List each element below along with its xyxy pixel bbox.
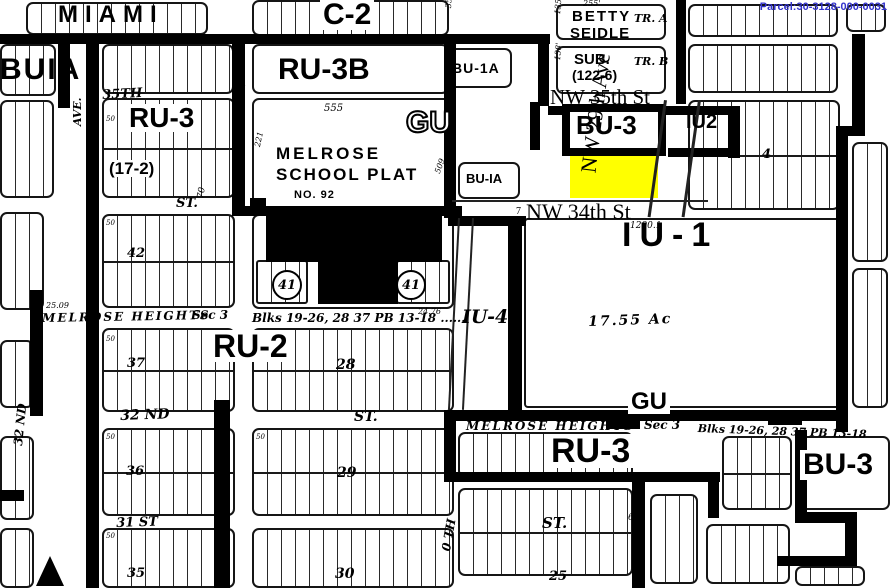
zone-boundary-line — [30, 290, 43, 416]
block-num-36: 36 — [126, 465, 144, 478]
zoning-map-canvas[interactable]: C-2RU-3BBU-1ARU-3(17-2)GUBU-3IU2IU-1IU-4… — [0, 0, 890, 588]
lot-block — [102, 214, 235, 308]
building-footprint — [318, 260, 398, 304]
plat-label-no-92: NO. 92 — [294, 190, 335, 201]
lot-41-circle-west: 41 — [272, 270, 302, 300]
lot-block — [852, 268, 888, 408]
zone-boundary-line — [777, 556, 857, 566]
block-num-29: 29 — [337, 466, 356, 480]
zone-boundary-line — [632, 482, 645, 588]
zone-label-bu1a-top: BU-1A — [452, 61, 500, 75]
street-label-ave-w: AVE. — [72, 98, 83, 126]
street-label-0th-vert: 0 TH — [440, 518, 458, 552]
plat-label-melrose-heights-s: MELROSE HEIGHTS — [466, 420, 635, 432]
street-label-32nd: 32 ND — [120, 407, 170, 423]
meas-50-e: 50 — [106, 533, 115, 540]
meas-138: 138' — [554, 43, 563, 61]
zone-boundary-line — [448, 472, 720, 482]
meas-50-c: 50 — [106, 336, 115, 343]
lot-block — [688, 44, 838, 93]
area-label-miami: MIAMI — [58, 3, 164, 27]
block-num-42: 42 — [127, 247, 145, 260]
zone-boundary-line — [668, 148, 732, 157]
block-num-30: 30 — [335, 567, 354, 581]
tract-label-a: TR. A — [634, 13, 668, 24]
lot-block — [0, 340, 34, 408]
zone-boundary-line — [530, 102, 540, 150]
plat-ref-17-2: (17-2) — [106, 160, 157, 177]
meas-25-09: 25.09 — [46, 302, 69, 310]
meas-60: 60 — [628, 514, 639, 523]
meas-50-a: 50 — [106, 116, 115, 123]
zone-boundary-line — [676, 0, 686, 104]
street-label-st-mid: ST. — [354, 410, 378, 424]
zone-label-gu-south: GU — [628, 390, 670, 414]
lot-block — [458, 488, 633, 576]
meas-255: 255' — [583, 0, 600, 8]
zone-label-bu3-south: BU-3 — [800, 450, 876, 480]
meas-1290-1: 1290.1 — [630, 222, 662, 231]
meas-137-5-a: 137.5 — [94, 138, 101, 158]
solid-triangle-marker — [36, 556, 64, 586]
zone-label-ru2: RU-2 — [210, 330, 291, 362]
zone-label-c2: C-2 — [320, 0, 374, 30]
lot-block — [706, 524, 790, 584]
lot-block — [0, 528, 34, 588]
street-label-35th-nw: 35TH — [102, 87, 143, 102]
meas-3524: 3524 — [445, 0, 454, 8]
zone-label-ru3b: RU-3B — [278, 55, 370, 85]
zone-boundary-line — [214, 400, 230, 588]
lot-block — [0, 436, 34, 520]
zone-boundary-line — [836, 134, 848, 432]
lot-block — [0, 100, 54, 198]
zone-boundary-line — [250, 198, 266, 211]
zone-label-bu1a-west-edge: BUIA — [0, 55, 81, 85]
zone-label-bu1a-mid: BU-IA — [466, 172, 502, 185]
meas-50-f: 50 — [256, 434, 265, 441]
lot-block — [650, 494, 698, 584]
street-label-ave-mid: AVE. — [234, 83, 247, 114]
meas-137-5-b: 137.5 — [94, 358, 101, 378]
zone-label-iu4: IU-4 — [462, 308, 508, 327]
zone-boundary-line — [508, 216, 522, 416]
plat-label-sec3-n: Sec 3 — [192, 309, 228, 321]
plat-label-school-plat: SCHOOL PLAT — [276, 166, 418, 183]
tract-label-b: TR. B — [634, 56, 668, 67]
street-label-st-s: ST. — [542, 516, 567, 531]
area-label-1755-ac: 17.55 Ac — [588, 312, 673, 329]
zone-boundary-line — [852, 34, 865, 136]
parcel-id-text: Parcel:30-3128-000-0031 — [760, 1, 887, 13]
lot-block — [722, 436, 792, 510]
street-label-nw-34th-prefix: 7 — [516, 207, 521, 217]
zone-label-iu2: IU2 — [686, 112, 717, 132]
block-num-35: 35 — [127, 567, 145, 580]
zone-label-ru3-south: RU-3 — [548, 434, 633, 468]
meas-24-76: 24.76 — [418, 308, 441, 316]
lot-block — [852, 142, 888, 262]
plat-label-melrose-heights-n: MELROSE HEIGHTS — [42, 309, 211, 324]
building-footprint — [266, 212, 442, 262]
plat-label-sec3-s: Sec 3 — [644, 419, 680, 431]
street-label-st-nw: ST. — [176, 197, 198, 210]
street-label-31st: 31 ST — [116, 516, 158, 530]
zone-boundary-line — [708, 472, 719, 518]
block-num-28: 28 — [336, 358, 355, 372]
zone-boundary-line — [0, 490, 24, 501]
plat-label-melrose: MELROSE — [276, 145, 381, 162]
meas-50-b: 50 — [106, 220, 115, 227]
meas-135: 135' — [554, 0, 563, 15]
zone-boundary-line — [768, 414, 802, 425]
lot-block — [795, 566, 865, 586]
meas-50-d: 50 — [106, 434, 115, 441]
block-num-37: 37 — [127, 357, 145, 370]
block-num-25: 25 — [549, 570, 567, 583]
zone-label-ru3-west: RU-3 — [126, 104, 197, 132]
block-num-4: 4 — [762, 148, 771, 161]
lot-41-circle-east: 41 — [396, 270, 426, 300]
meas-555: 555 — [324, 104, 343, 114]
street-label-ave-e: AVE. — [444, 83, 457, 114]
zone-boundary-line — [232, 36, 245, 216]
zone-boundary-line — [538, 34, 549, 106]
zone-boundary-line — [0, 34, 550, 44]
